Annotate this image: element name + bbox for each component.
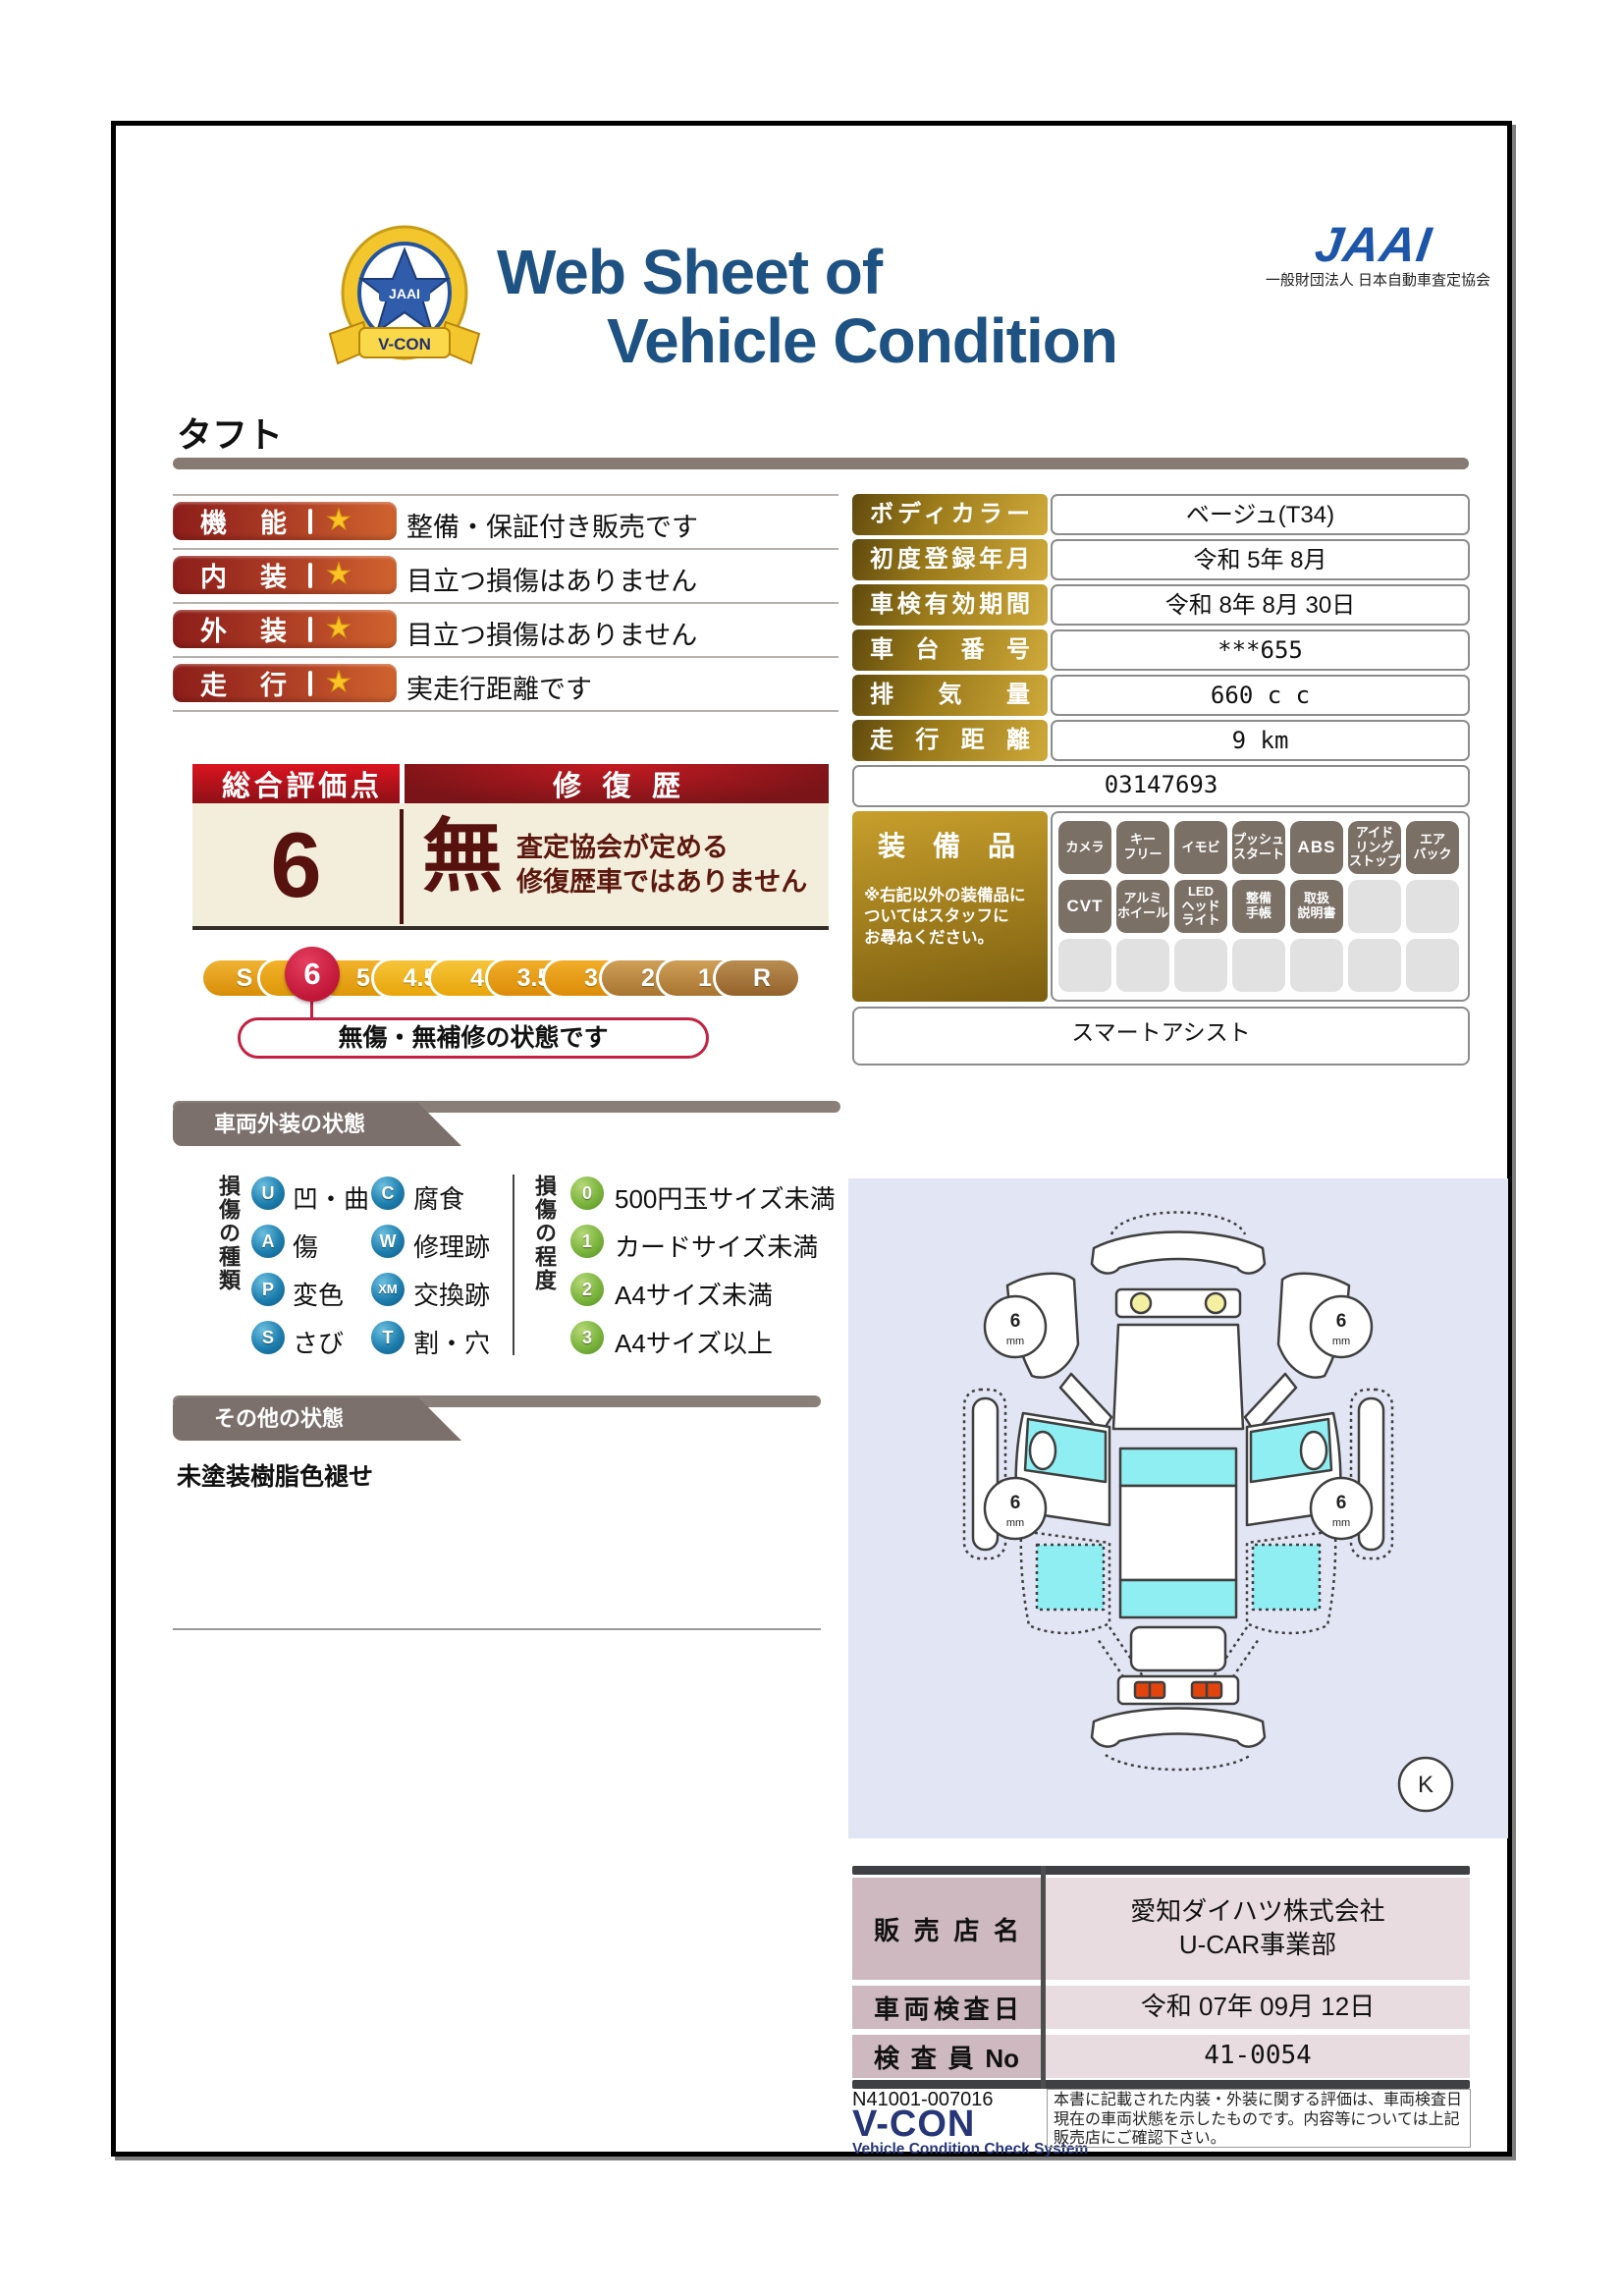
equipment-title: 装備品 bbox=[878, 825, 1015, 864]
info-value-inspection-valid: 令和 8年 8月 30日 bbox=[1051, 584, 1470, 626]
repair-note-line1: 査定協会が定める bbox=[516, 831, 807, 865]
repair-history-note: 査定協会が定める 修復歴車ではありません bbox=[516, 831, 807, 900]
info-label-inspection-valid: 車検有効期間 bbox=[852, 584, 1048, 626]
damage-type-label: 損傷の種類 bbox=[212, 1175, 243, 1292]
damage-type-u: U bbox=[251, 1176, 285, 1210]
damage-degree-3: 3 bbox=[570, 1321, 604, 1354]
equipment-extra: スマートアシスト bbox=[852, 1007, 1470, 1066]
svg-text:6: 6 bbox=[1336, 1493, 1347, 1513]
info-label-mileage: 走行距離 bbox=[852, 720, 1048, 761]
rating-comment: 目立つ損傷はありません bbox=[406, 614, 697, 652]
rating-label: 機能 bbox=[200, 502, 287, 540]
overall-score-header: 総合評価点 bbox=[192, 764, 400, 803]
info-label-chassis-no: 車台番号 bbox=[852, 629, 1048, 671]
dealer-value-shop: 愛知ダイハツ株式会社 U-CAR事業部 bbox=[1046, 1878, 1470, 1980]
jaai-logo: JAAI bbox=[1312, 216, 1435, 273]
star-icon: ★ bbox=[326, 615, 352, 643]
legend-divider bbox=[513, 1175, 514, 1355]
rule bbox=[173, 710, 839, 712]
exterior-section-title: 車両外装の状態 bbox=[173, 1103, 418, 1146]
equipment-badge-immobilizer: イモビ bbox=[1174, 821, 1227, 874]
other-condition-note: 未塗装樹脂色褪せ bbox=[177, 1457, 373, 1493]
rating-pill: 機能 ★ bbox=[173, 502, 397, 540]
screenshot-canvas: JAAI V-CON Web Sheet of Vehicle Conditio… bbox=[0, 0, 1623, 2296]
rating-comment: 実走行距離です bbox=[406, 668, 592, 706]
rating-comment: 整備・保証付き販売です bbox=[406, 506, 698, 544]
equipment-row bbox=[1058, 939, 1462, 992]
svg-text:mm: mm bbox=[1006, 1517, 1024, 1529]
rear-bumper-dotted bbox=[1106, 1755, 1251, 1770]
damage-type-xm-label: 交換跡 bbox=[413, 1276, 490, 1312]
sheet-code: 03147693 bbox=[852, 765, 1470, 807]
damage-degree-1-label: カードサイズ未満 bbox=[615, 1228, 818, 1264]
headlight-right-icon bbox=[1206, 1293, 1225, 1313]
dealer-table-bottom-bar bbox=[852, 2080, 1470, 2089]
svg-text:6: 6 bbox=[1336, 1311, 1347, 1332]
vehicle-name: タフト bbox=[177, 407, 283, 458]
overall-score-value: 6 bbox=[192, 803, 400, 926]
damage-type-p: P bbox=[251, 1273, 285, 1306]
equipment-badge-keyfree: キー フリー bbox=[1116, 821, 1169, 874]
dealer-label-shop: 販売店名 bbox=[852, 1878, 1041, 1980]
dealer-label-inspection-date: 車両検査日 bbox=[852, 1986, 1041, 2029]
damage-type-u-label: 凹・曲 bbox=[293, 1179, 369, 1216]
car-damage-diagram: 6 mm 6 mm 6 mm 6 mm K bbox=[848, 1178, 1508, 1838]
damage-degree-3-label: A4サイズ以上 bbox=[615, 1324, 773, 1360]
svg-text:mm: mm bbox=[1332, 1336, 1350, 1347]
damage-type-c: C bbox=[371, 1176, 405, 1210]
damage-legend: 損傷の種類 U 凹・曲 C 腐食 A 傷 W 修理跡 P 変色 XM 交換跡 S… bbox=[173, 1167, 850, 1373]
front-roof-glass bbox=[1120, 1449, 1236, 1486]
equipment-badge-empty bbox=[1406, 880, 1459, 933]
damage-type-a: A bbox=[251, 1225, 285, 1258]
equipment-badge-abs: ABS bbox=[1290, 821, 1343, 874]
star-icon: ★ bbox=[326, 561, 352, 589]
repair-history-header: 修復歴 bbox=[405, 764, 829, 803]
exterior-section-banner: 車両外装の状態 bbox=[173, 1101, 840, 1144]
damage-degree-label: 損傷の程度 bbox=[528, 1175, 560, 1292]
rating-label: 内装 bbox=[200, 556, 287, 594]
damage-type-t: T bbox=[371, 1321, 405, 1354]
badge-vcon-text: V-CON bbox=[378, 335, 431, 354]
info-value-displacement: 660 c c bbox=[1051, 675, 1470, 716]
overall-score-title: 総合評価点 bbox=[222, 763, 379, 804]
selected-grade-marker: 6 bbox=[285, 947, 340, 1002]
equipment-note: ※右記以外の装備品に ついてはスタッフに お尋ねください。 bbox=[864, 886, 1048, 949]
rule bbox=[173, 1628, 821, 1630]
rating-label: 外装 bbox=[200, 610, 287, 648]
equipment-row: CVT アルミ ホイール LED ヘッド ライト 整備 手帳 取扱 説明書 bbox=[1058, 880, 1462, 933]
equipment-badge-airbag: エア バック bbox=[1406, 821, 1459, 874]
equipment-badge-empty bbox=[1174, 939, 1227, 992]
equipment-badge-empty bbox=[1116, 939, 1169, 992]
equipment-badge-led-headlight: LED ヘッド ライト bbox=[1174, 880, 1227, 933]
damage-type-s: S bbox=[251, 1321, 285, 1354]
k-mark: K bbox=[1418, 1772, 1434, 1798]
svg-text:6: 6 bbox=[1010, 1493, 1021, 1513]
equipment-row: カメラ キー フリー イモビ プッシュ スタート ABS アイド リング ストッ… bbox=[1058, 821, 1462, 874]
info-value-mileage: 9 km bbox=[1051, 720, 1470, 761]
grade-description-bubble: 無傷・無補修の状態です bbox=[238, 1017, 709, 1059]
marker-connector bbox=[310, 1002, 313, 1018]
info-label-body-color: ボディカラー bbox=[852, 494, 1048, 535]
vehicle-condition-sheet: JAAI V-CON Web Sheet of Vehicle Conditio… bbox=[111, 121, 1512, 2157]
overall-body: 6 無 査定協会が定める 修復歴車ではありません bbox=[192, 803, 829, 930]
rule bbox=[173, 602, 839, 604]
rule bbox=[173, 494, 839, 496]
dealer-value-inspector-no: 41-0054 bbox=[1046, 2035, 1470, 2078]
body-divider bbox=[400, 809, 404, 924]
equipment-panel: 装備品 ※右記以外の装備品に ついてはスタッフに お尋ねください。 bbox=[852, 811, 1048, 1002]
rear-glass bbox=[1120, 1580, 1236, 1617]
dealer-value-inspection-date: 令和 07年 09月 12日 bbox=[1046, 1986, 1470, 2029]
front-bumper bbox=[1092, 1232, 1265, 1274]
damage-degree-2-label: A4サイズ未満 bbox=[615, 1276, 773, 1312]
pill-divider bbox=[308, 563, 312, 588]
equipment-badge-service-book: 整備 手帳 bbox=[1232, 880, 1285, 933]
repair-history-value: 無 bbox=[422, 817, 503, 898]
other-section-banner: その他の状態 bbox=[173, 1395, 821, 1439]
dealer-table-top-bar bbox=[852, 1866, 1470, 1875]
scale-seg-r: R bbox=[716, 960, 798, 996]
damage-type-w: W bbox=[371, 1225, 405, 1258]
pill-divider bbox=[308, 671, 312, 696]
damage-type-s-label: さび bbox=[293, 1324, 344, 1360]
info-label-displacement: 排気量 bbox=[852, 675, 1048, 716]
damage-type-p-label: 変色 bbox=[293, 1276, 344, 1312]
damage-type-xm: XM bbox=[371, 1273, 405, 1306]
damage-type-t-label: 割・穴 bbox=[413, 1324, 490, 1360]
equipment-badge-camera: カメラ bbox=[1058, 821, 1111, 874]
svg-text:6: 6 bbox=[1010, 1311, 1021, 1332]
rating-comment: 目立つ損傷はありません bbox=[406, 560, 697, 598]
sheet-title-line2: Vehicle Condition bbox=[607, 304, 1117, 377]
jaai-subtitle: 一般財団法人 日本自動車査定協会 bbox=[1196, 269, 1490, 290]
other-section-title: その他の状態 bbox=[173, 1397, 418, 1441]
main-divider bbox=[173, 458, 1469, 469]
rating-pill: 外装 ★ bbox=[173, 610, 397, 648]
equipment-badge-empty bbox=[1290, 939, 1343, 992]
star-icon: ★ bbox=[326, 669, 352, 697]
damage-type-c-label: 腐食 bbox=[413, 1179, 464, 1216]
info-value-chassis-no: ***655 bbox=[1051, 629, 1470, 671]
star-icon: ★ bbox=[326, 507, 352, 535]
car-diagram-svg: 6 mm 6 mm 6 mm 6 mm K bbox=[848, 1178, 1508, 1838]
equipment-badge-empty bbox=[1348, 939, 1401, 992]
sheet-title-line1: Web Sheet of bbox=[497, 236, 882, 308]
windshield bbox=[1113, 1325, 1243, 1429]
equipment-badge-cvt: CVT bbox=[1058, 880, 1111, 933]
rating-pill: 走行 ★ bbox=[173, 664, 397, 702]
overall-evaluation-box: 総合評価点 修復歴 6 無 査定協会が定める 修復歴車ではありません bbox=[192, 764, 829, 930]
overall-header: 総合評価点 修復歴 bbox=[192, 764, 829, 803]
rear-bumper bbox=[1092, 1709, 1265, 1747]
equipment-badge-manual: 取扱 説明書 bbox=[1290, 880, 1343, 933]
svg-text:mm: mm bbox=[1006, 1336, 1024, 1347]
equipment-badge-alloy-wheels: アルミ ホイール bbox=[1116, 880, 1169, 933]
equipment-grid: カメラ キー フリー イモビ プッシュ スタート ABS アイド リング ストッ… bbox=[1051, 811, 1470, 1002]
damage-type-a-label: 傷 bbox=[293, 1228, 318, 1264]
equipment-badge-empty bbox=[1406, 939, 1459, 992]
equipment-badge-empty bbox=[1232, 939, 1285, 992]
roof bbox=[1120, 1486, 1236, 1580]
damage-degree-1: 1 bbox=[570, 1225, 604, 1258]
tailgate bbox=[1131, 1627, 1225, 1670]
repair-note-line2: 修復歴車ではありません bbox=[516, 865, 807, 900]
dealer-label-inspector-no: 検査員No bbox=[852, 2035, 1041, 2078]
damage-type-w-label: 修理跡 bbox=[413, 1228, 490, 1264]
info-value-body-color: ベージュ(T34) bbox=[1051, 494, 1470, 535]
info-value-first-registration: 令和 5年 8月 bbox=[1051, 539, 1470, 580]
damage-degree-2: 2 bbox=[570, 1273, 604, 1306]
rule bbox=[173, 656, 839, 658]
vcon-logo-badge: JAAI V-CON bbox=[314, 224, 496, 386]
rating-label: 走行 bbox=[200, 664, 287, 702]
headlight-left-icon bbox=[1131, 1293, 1151, 1313]
svg-text:mm: mm bbox=[1332, 1517, 1350, 1529]
equipment-badge-empty bbox=[1348, 880, 1401, 933]
rating-pill: 内装 ★ bbox=[173, 556, 397, 594]
pill-divider bbox=[308, 617, 312, 642]
pill-divider bbox=[308, 509, 312, 534]
equipment-badge-pushstart: プッシュ スタート bbox=[1232, 821, 1285, 874]
equipment-badge-idling-stop: アイド リング ストップ bbox=[1348, 821, 1401, 874]
vcon-logo-text: V-CON bbox=[852, 2104, 975, 2146]
info-label-first-registration: 初度登録年月 bbox=[852, 539, 1048, 580]
damage-degree-0-label: 500円玉サイズ未満 bbox=[615, 1179, 836, 1216]
repair-history-title: 修復歴 bbox=[553, 763, 680, 804]
dealer-table-divider bbox=[1041, 1866, 1046, 2089]
badge-jaai-text: JAAI bbox=[389, 286, 420, 301]
damage-degree-0: 0 bbox=[570, 1176, 604, 1210]
equipment-badge-empty bbox=[1058, 939, 1111, 992]
footer-disclaimer: 本書に記載された内装・外装に関する評価は、車両検査日現在の車両状態を示したもので… bbox=[1047, 2089, 1471, 2148]
rule bbox=[173, 548, 839, 550]
